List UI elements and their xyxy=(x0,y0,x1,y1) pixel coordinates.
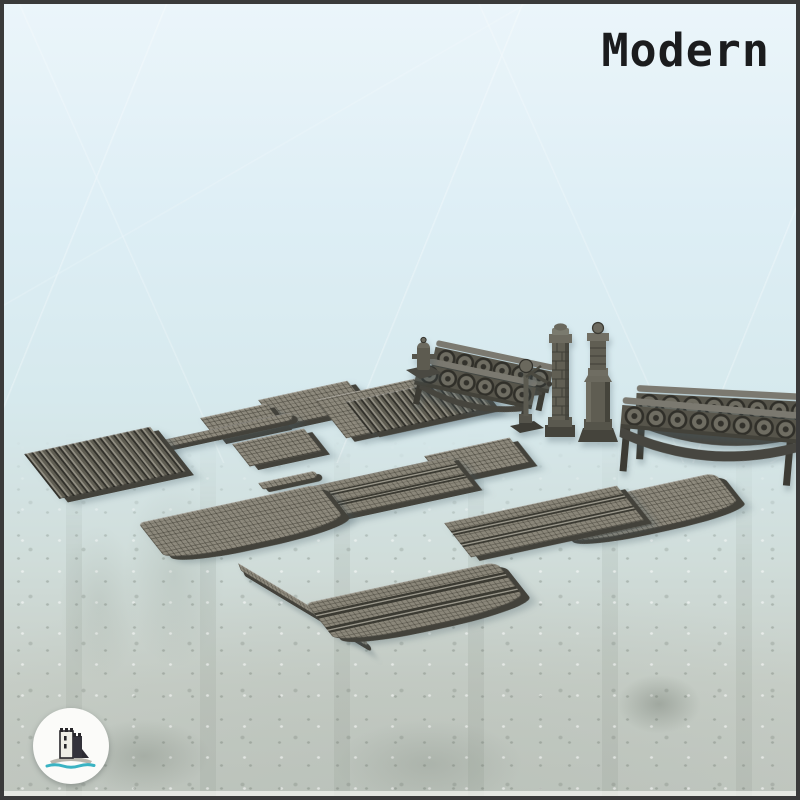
product-photo-frame: Modern xyxy=(0,0,800,800)
street-furniture-layer xyxy=(4,4,800,800)
brand-logo xyxy=(30,705,112,787)
ornate-column xyxy=(578,323,618,443)
